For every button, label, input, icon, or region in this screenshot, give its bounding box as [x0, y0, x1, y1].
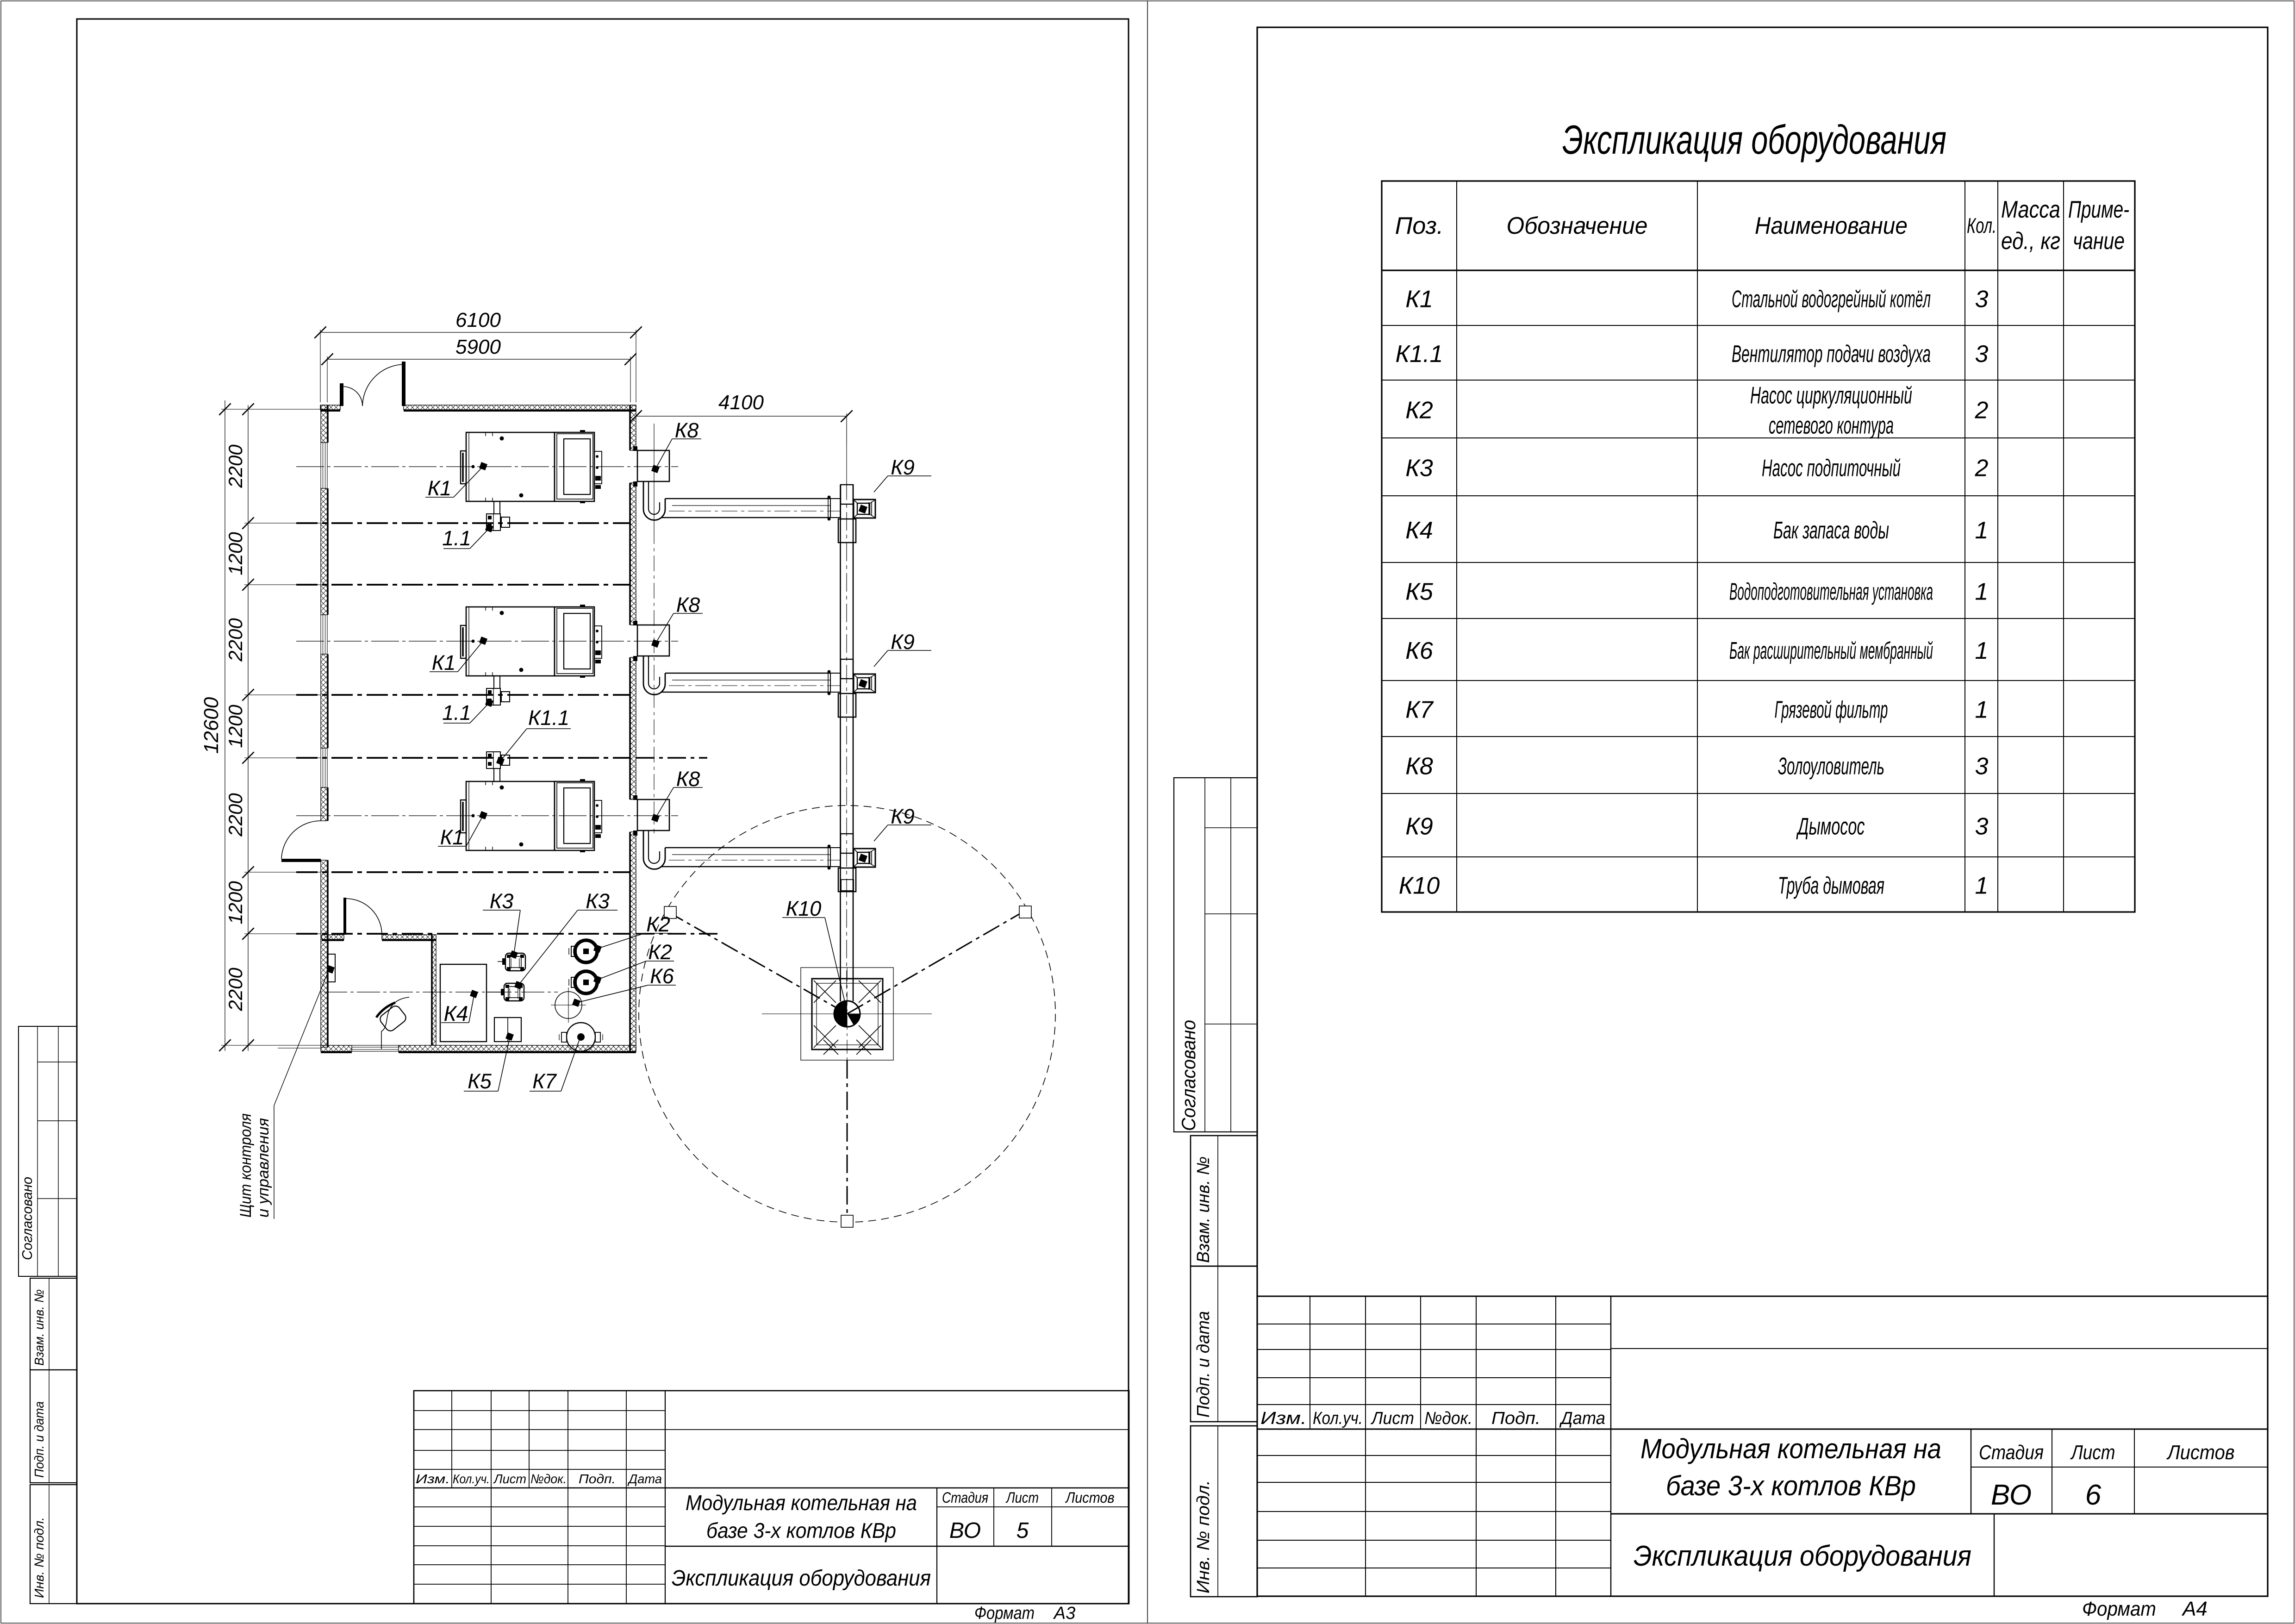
svg-text:Бак запаса воды: Бак запаса воды: [1773, 517, 1889, 544]
svg-text:К7: К7: [532, 1069, 557, 1093]
svg-text:Кол.уч.: Кол.уч.: [1313, 1409, 1363, 1428]
svg-text:Золоуловитель: Золоуловитель: [1778, 753, 1884, 780]
svg-text:сетевого контура: сетевого контура: [1769, 412, 1894, 439]
svg-text:2200: 2200: [225, 968, 246, 1012]
svg-text:Кол.: Кол.: [1967, 213, 1996, 237]
svg-text:К2: К2: [646, 912, 670, 936]
svg-text:5: 5: [1017, 1518, 1029, 1543]
svg-text:1: 1: [1975, 697, 1989, 724]
svg-text:Модульная котельная на: Модульная котельная на: [686, 1491, 917, 1515]
svg-text:№док.: №док.: [1424, 1409, 1472, 1428]
svg-text:Изм.: Изм.: [1260, 1409, 1307, 1428]
svg-text:1: 1: [1975, 579, 1989, 606]
svg-text:А4: А4: [2181, 1598, 2208, 1620]
svg-text:1: 1: [1975, 873, 1989, 899]
svg-text:А3: А3: [1053, 1604, 1075, 1623]
svg-text:Вентилятор подачи воздуха: Вентилятор подачи воздуха: [1732, 341, 1931, 368]
svg-text:Дата: Дата: [627, 1472, 662, 1486]
svg-text:1: 1: [1975, 637, 1989, 664]
svg-text:Кол.уч.: Кол.уч.: [453, 1472, 490, 1486]
svg-text:Экспликация оборудования: Экспликация оборудования: [1562, 117, 1946, 162]
svg-text:Дата: Дата: [1559, 1409, 1605, 1428]
svg-text:Обозначение: Обозначение: [1507, 212, 1648, 239]
svg-text:2: 2: [1975, 455, 1989, 482]
svg-text:Насос циркуляционный: Насос циркуляционный: [1750, 382, 1912, 409]
svg-text:Подп.: Подп.: [1491, 1409, 1540, 1428]
svg-text:6100: 6100: [455, 309, 501, 331]
svg-text:Грязевой фильтр: Грязевой фильтр: [1775, 697, 1888, 724]
svg-text:1200: 1200: [225, 705, 246, 748]
svg-text:Листов: Листов: [1065, 1489, 1115, 1506]
svg-text:3: 3: [1975, 813, 1989, 840]
svg-text:Водоподготовительная установка: Водоподготовительная установка: [1729, 579, 1933, 606]
svg-text:К1: К1: [1405, 286, 1433, 313]
svg-text:Лист: Лист: [1005, 1489, 1039, 1506]
svg-text:К10: К10: [1399, 873, 1440, 899]
svg-text:Подп. и дата: Подп. и дата: [32, 1401, 46, 1478]
svg-text:Согласовано: Согласовано: [19, 1177, 35, 1260]
svg-text:Стадия: Стадия: [942, 1489, 988, 1506]
svg-text:К1: К1: [440, 825, 464, 849]
svg-text:К3: К3: [586, 889, 610, 913]
svg-text:Насос подпиточный: Насос подпиточный: [1762, 455, 1901, 482]
svg-text:К10: К10: [786, 897, 822, 920]
svg-text:4100: 4100: [718, 391, 764, 414]
svg-text:Подп. и дата: Подп. и дата: [1194, 1311, 1213, 1418]
svg-text:Инв. № подл.: Инв. № подл.: [32, 1517, 46, 1598]
svg-text:Бак расширительный мембранный: Бак расширительный мембранный: [1729, 637, 1933, 664]
svg-text:чание: чание: [2073, 228, 2125, 255]
svg-text:Труба дымовая: Труба дымовая: [1778, 873, 1884, 899]
svg-text:Наименование: Наименование: [1755, 212, 1908, 239]
svg-text:Экспликация оборудования: Экспликация оборудования: [1634, 1540, 1971, 1572]
svg-text:К1: К1: [428, 476, 452, 500]
svg-text:1: 1: [1975, 517, 1989, 544]
svg-text:К4: К4: [1405, 517, 1433, 544]
svg-text:5900: 5900: [455, 336, 501, 358]
svg-text:К8: К8: [1405, 753, 1433, 780]
svg-text:Инв. № подл.: Инв. № подл.: [1194, 1480, 1213, 1593]
svg-text:Взам. инв. №: Взам. инв. №: [1194, 1156, 1213, 1263]
svg-text:Модульная котельная на: Модульная котельная на: [1640, 1433, 1941, 1464]
svg-text:Лист: Лист: [493, 1472, 526, 1486]
svg-text:2200: 2200: [225, 444, 246, 488]
svg-text:Формат: Формат: [2082, 1598, 2156, 1620]
svg-text:К1.1: К1.1: [528, 706, 569, 730]
svg-text:2200: 2200: [225, 793, 246, 837]
svg-text:К9: К9: [1405, 813, 1433, 840]
svg-text:К3: К3: [1405, 455, 1433, 482]
svg-text:К2: К2: [1405, 397, 1433, 424]
svg-text:3: 3: [1975, 753, 1989, 780]
svg-text:12600: 12600: [200, 697, 223, 754]
svg-text:ВО: ВО: [1991, 1479, 2032, 1511]
svg-text:базе 3-х котлов КВр: базе 3-х котлов КВр: [706, 1518, 896, 1543]
svg-text:Стадия: Стадия: [1979, 1441, 2044, 1464]
svg-text:Приме-: Приме-: [2068, 196, 2129, 223]
svg-text:К2: К2: [648, 940, 672, 964]
svg-text:Подп.: Подп.: [579, 1472, 616, 1486]
svg-text:базе 3-х котлов КВр: базе 3-х котлов КВр: [1666, 1470, 1916, 1501]
svg-text:№док.: №док.: [530, 1472, 567, 1486]
svg-text:Масса: Масса: [2001, 196, 2060, 223]
svg-text:ВО: ВО: [949, 1518, 981, 1543]
svg-text:и управления: и управления: [255, 1118, 272, 1218]
svg-text:К5: К5: [468, 1069, 492, 1093]
svg-text:Изм.: Изм.: [416, 1472, 450, 1486]
svg-text:6: 6: [2085, 1479, 2102, 1511]
svg-text:Щит контроля: Щит контроля: [237, 1113, 255, 1218]
svg-text:К5: К5: [1405, 579, 1434, 606]
svg-text:Взам. инв. №: Взам. инв. №: [32, 1289, 46, 1366]
svg-text:К3: К3: [490, 889, 514, 913]
svg-text:1.1: 1.1: [442, 701, 471, 725]
svg-text:К4: К4: [444, 1001, 468, 1025]
svg-text:Экспликация оборудования: Экспликация оборудования: [672, 1566, 931, 1591]
svg-text:Согласовано: Согласовано: [1178, 1020, 1199, 1131]
svg-text:К7: К7: [1405, 697, 1434, 724]
svg-text:Лист: Лист: [1370, 1409, 1414, 1428]
svg-text:3: 3: [1975, 286, 1989, 313]
svg-text:Лист: Лист: [2070, 1441, 2115, 1464]
svg-text:2200: 2200: [225, 618, 246, 662]
svg-text:1200: 1200: [225, 881, 246, 924]
svg-text:Формат: Формат: [974, 1604, 1035, 1623]
svg-text:1200: 1200: [225, 532, 246, 575]
svg-text:К6: К6: [1405, 637, 1433, 664]
svg-text:К1: К1: [432, 651, 456, 675]
svg-text:К6: К6: [650, 964, 674, 988]
svg-text:3: 3: [1975, 341, 1989, 368]
svg-text:Стальной водогрейный котёл: Стальной водогрейный котёл: [1732, 286, 1931, 313]
svg-text:Поз.: Поз.: [1395, 212, 1444, 239]
svg-text:ед., кг: ед., кг: [2001, 228, 2060, 255]
svg-text:К1.1: К1.1: [1396, 341, 1443, 368]
svg-text:2: 2: [1975, 397, 1989, 424]
svg-text:1.1: 1.1: [442, 526, 471, 550]
svg-text:Дымосос: Дымосос: [1796, 813, 1865, 840]
svg-text:Листов: Листов: [2166, 1441, 2235, 1464]
